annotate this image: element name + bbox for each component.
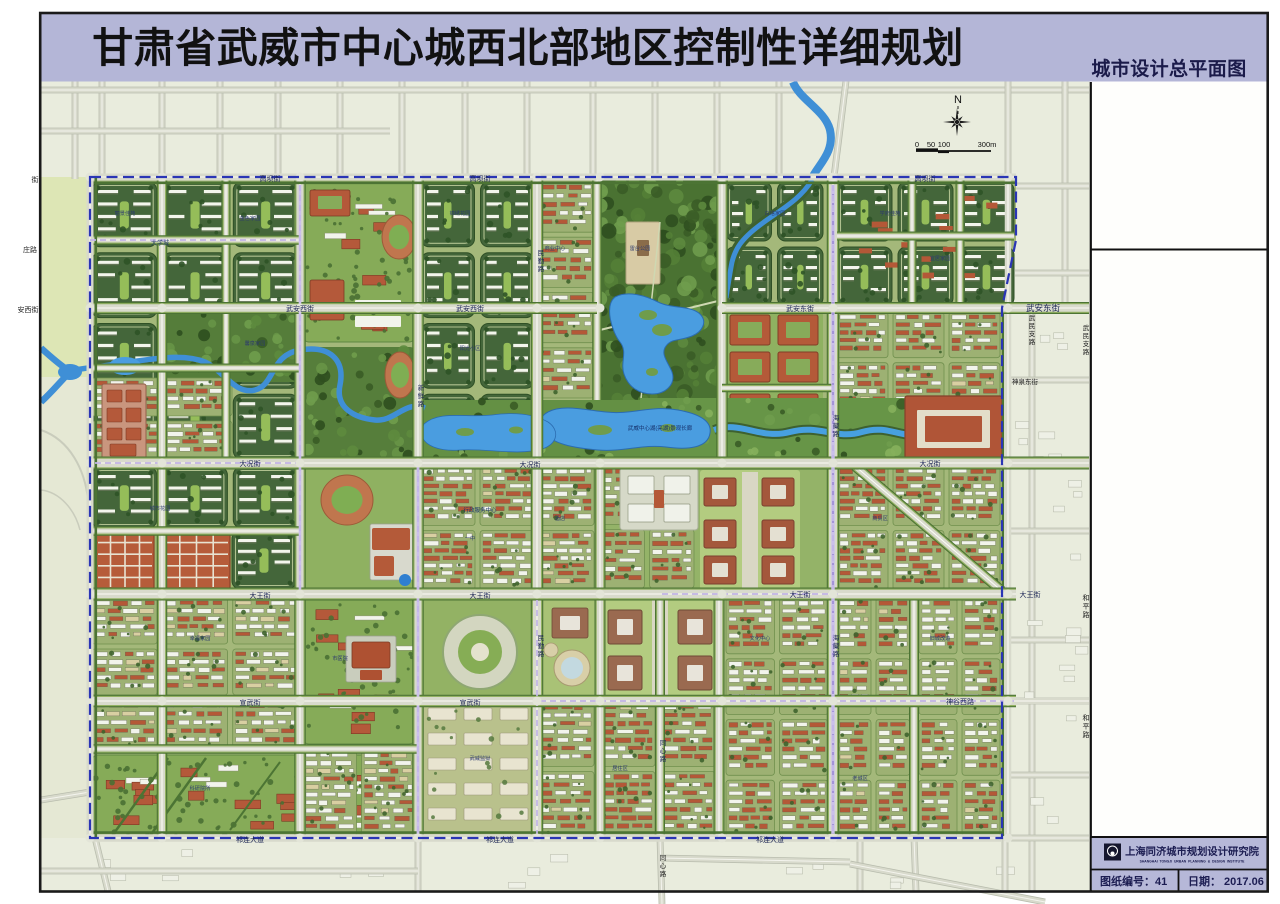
svg-text:海: 海	[833, 413, 840, 422]
svg-text:勤: 勤	[538, 641, 545, 650]
svg-text:民: 民	[538, 634, 545, 642]
svg-text:路: 路	[1083, 610, 1090, 619]
svg-text:神泉东街: 神泉东街	[1012, 377, 1039, 386]
svg-text:路: 路	[1083, 347, 1090, 356]
svg-text:祁连大道: 祁连大道	[236, 835, 264, 844]
svg-text:丽景佳苑: 丽景佳苑	[115, 209, 136, 217]
svg-text:平: 平	[1083, 603, 1090, 611]
svg-text:大况街: 大况街	[520, 460, 541, 469]
svg-text:祁连大道: 祁连大道	[756, 835, 784, 844]
svg-text:50: 50	[927, 140, 935, 149]
svg-text:城市花园: 城市花园	[150, 504, 171, 512]
svg-text:大王街: 大王街	[250, 591, 271, 600]
svg-text:神谷西路: 神谷西路	[946, 697, 974, 706]
svg-text:上海同济城市规划设计研究院: 上海同济城市规划设计研究院	[1125, 845, 1260, 858]
svg-text:300m: 300m	[978, 140, 997, 149]
svg-text:新: 新	[418, 383, 425, 392]
svg-text:高坝街: 高坝街	[470, 174, 491, 183]
svg-text:学府佳苑: 学府佳苑	[880, 209, 901, 217]
svg-text:大况街: 大况街	[240, 459, 261, 468]
svg-text:街: 街	[32, 175, 39, 184]
svg-text:锦绣花园: 锦绣花园	[450, 209, 471, 217]
svg-text:民: 民	[1029, 322, 1036, 330]
svg-text:酒店: 酒店	[555, 514, 565, 522]
svg-text:民: 民	[538, 249, 545, 257]
svg-text:心: 心	[660, 747, 667, 755]
svg-text:路: 路	[538, 264, 545, 273]
svg-text:大况街: 大况街	[920, 459, 941, 468]
svg-text:商业中心: 商业中心	[545, 244, 566, 252]
svg-text:馨泉家园: 馨泉家园	[245, 339, 266, 347]
svg-text:文化中心: 文化中心	[750, 634, 771, 642]
svg-text:藏: 藏	[833, 641, 840, 650]
svg-text:N: N	[954, 94, 962, 106]
svg-text:一中: 一中	[465, 534, 475, 542]
svg-text:支: 支	[1029, 329, 1036, 338]
svg-text:路: 路	[538, 649, 545, 658]
svg-text:路: 路	[660, 869, 667, 878]
svg-text:大学城: 大学城	[151, 239, 169, 247]
svg-text:同: 同	[660, 739, 667, 747]
svg-text:100: 100	[938, 140, 951, 149]
svg-text:路: 路	[833, 649, 840, 658]
svg-text:路: 路	[1083, 730, 1090, 739]
svg-text:雷台公园: 雷台公园	[630, 244, 651, 252]
svg-text:甘肃省武威市中心城西北部地区控制性详细规划: 甘肃省武威市中心城西北部地区控制性详细规划	[92, 25, 964, 71]
svg-text:大王街: 大王街	[790, 590, 811, 599]
svg-text:武安东街: 武安东街	[786, 304, 814, 313]
svg-text:武威中心湖(亮湖)景观长廊: 武威中心湖(亮湖)景观长廊	[628, 424, 693, 432]
svg-text:民: 民	[1083, 332, 1090, 340]
svg-text:大王街: 大王街	[1020, 590, 1041, 599]
svg-text:路: 路	[833, 429, 840, 438]
svg-text:市医院: 市医院	[332, 654, 348, 662]
svg-text:鲜: 鲜	[418, 391, 425, 400]
svg-text:平: 平	[1083, 723, 1090, 731]
svg-text:庄路: 庄路	[23, 245, 37, 254]
svg-text:海: 海	[833, 633, 840, 642]
svg-text:高坝街: 高坝街	[260, 174, 281, 183]
svg-text:阳光小区: 阳光小区	[460, 344, 481, 352]
svg-text:武: 武	[1083, 323, 1090, 332]
svg-text:宣武街: 宣武街	[460, 698, 481, 707]
svg-text:武安东街: 武安东街	[1026, 303, 1061, 313]
svg-text:商贸区: 商贸区	[872, 514, 888, 522]
svg-text:白塔家园: 白塔家园	[765, 209, 786, 217]
svg-text:高坝街: 高坝街	[915, 174, 936, 183]
svg-text:日期： 2017.06: 日期： 2017.06	[1188, 874, 1264, 888]
svg-text:安西街: 安西街	[18, 305, 39, 314]
svg-text:武威监狱: 武威监狱	[470, 754, 492, 762]
svg-text:0: 0	[915, 140, 919, 149]
svg-text:祁连大道: 祁连大道	[486, 835, 514, 844]
svg-text:金色家园: 金色家园	[240, 214, 261, 222]
svg-text:支: 支	[1083, 339, 1090, 348]
svg-text:老城区: 老城区	[852, 774, 868, 782]
svg-text:幸福家园: 幸福家园	[190, 634, 211, 642]
svg-text:心: 心	[660, 862, 667, 870]
svg-text:宜居家园: 宜居家园	[930, 254, 951, 262]
svg-text:和: 和	[1083, 713, 1090, 722]
svg-text:行政服务中心: 行政服务中心	[463, 506, 497, 514]
svg-text:武: 武	[1029, 313, 1036, 322]
svg-text:宣武街: 宣武街	[240, 698, 261, 707]
svg-text:大王街: 大王街	[470, 591, 491, 600]
svg-text:同: 同	[660, 854, 667, 862]
svg-text:城市设计总平面图: 城市设计总平面图	[1091, 57, 1246, 80]
svg-text:藏: 藏	[833, 421, 840, 430]
svg-text:SHANGHAI TONGJI URBAN PLANN: SHANGHAI TONGJI URBAN PLANNING & DESIGN …	[1140, 860, 1246, 864]
svg-text:居住区: 居住区	[612, 764, 628, 772]
svg-text:路: 路	[660, 754, 667, 763]
svg-text:武安西街: 武安西街	[286, 304, 314, 313]
svg-text:旧城改造: 旧城改造	[930, 634, 952, 642]
svg-text:武安西街: 武安西街	[456, 304, 484, 313]
svg-text:勤: 勤	[538, 256, 545, 265]
svg-text:路: 路	[418, 399, 425, 408]
svg-text:科研院所: 科研院所	[190, 784, 211, 792]
svg-text:图纸编号：41: 图纸编号：41	[1100, 874, 1167, 888]
svg-text:和: 和	[1083, 593, 1090, 602]
svg-text:路: 路	[1029, 337, 1036, 346]
